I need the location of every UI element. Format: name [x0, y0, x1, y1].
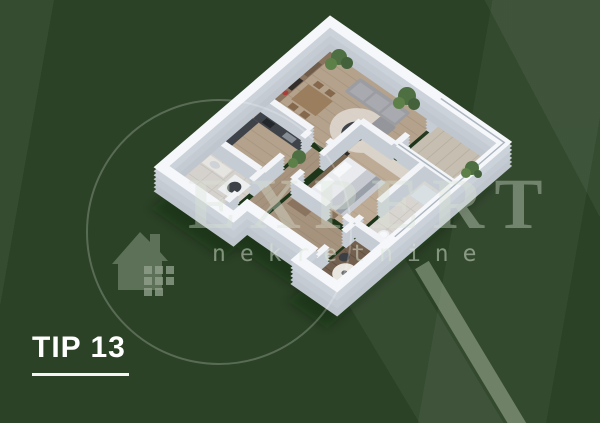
plant-icon	[393, 97, 405, 109]
brand-logo-house-icon	[110, 220, 180, 298]
plant-icon	[325, 58, 337, 70]
plant-icon	[408, 98, 420, 110]
watermark-brand-text: EXPERT	[188, 168, 556, 240]
plant-icon	[341, 57, 353, 69]
promo-image: EXPERT nekretnine TIP 13	[0, 0, 600, 423]
watermark-subtitle-text: nekretnine	[212, 243, 490, 266]
type-label: TIP 13	[32, 331, 129, 376]
